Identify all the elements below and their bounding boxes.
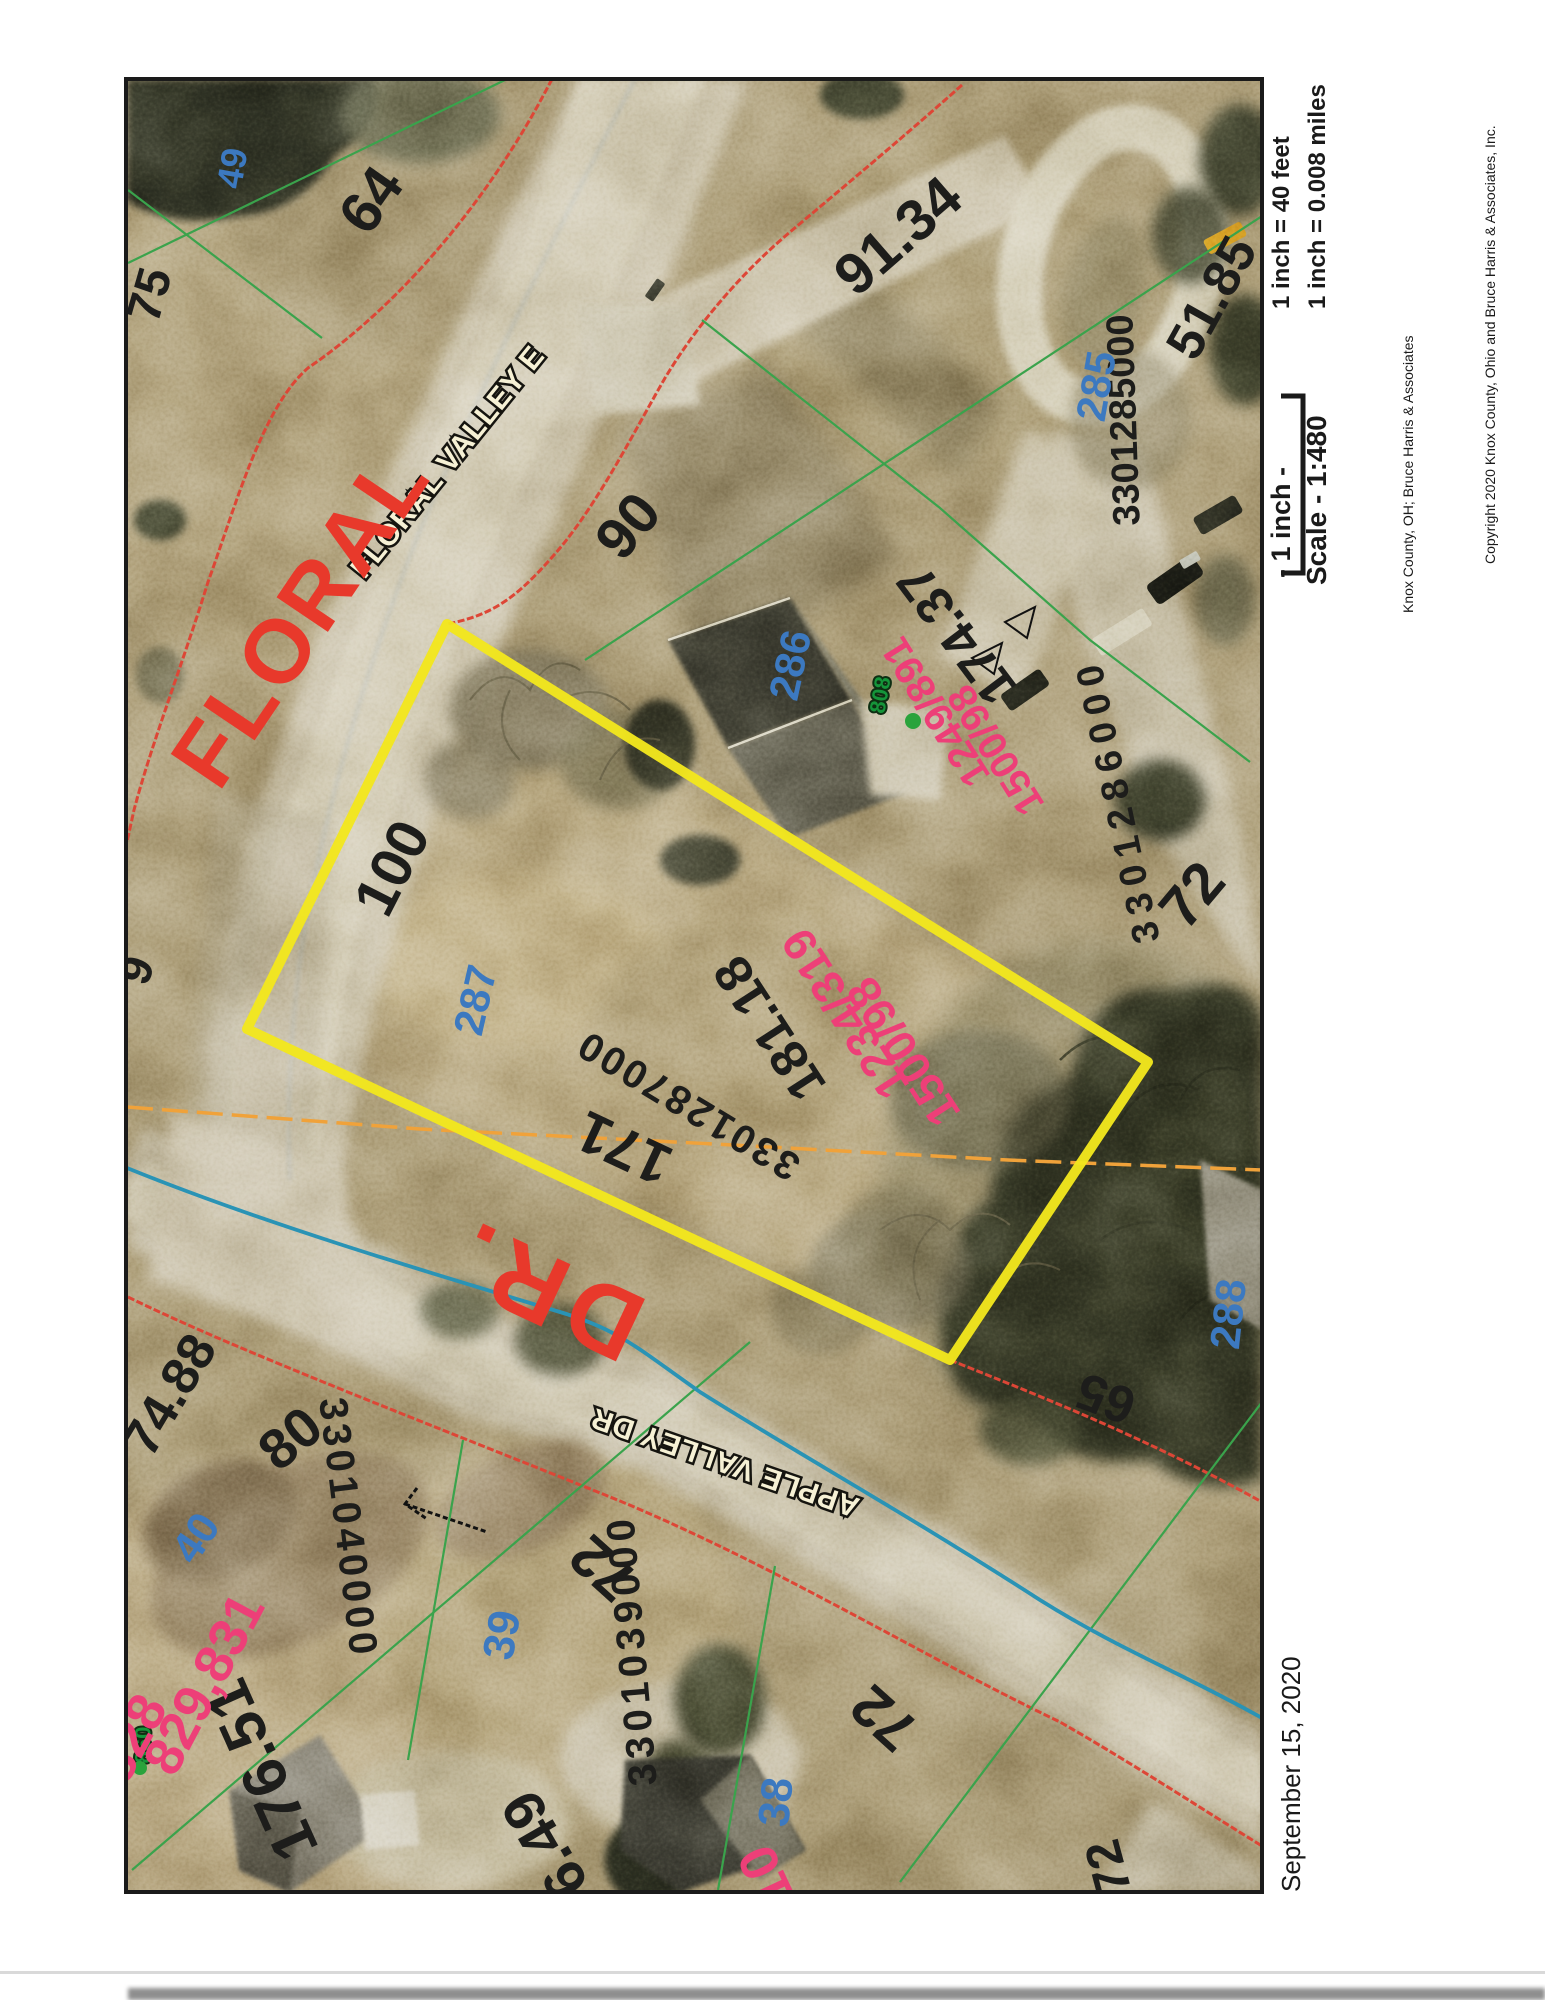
svg-text:1 inch = 0.008 miles: 1 inch = 0.008 miles [1304, 84, 1331, 309]
svg-text:39: 39 [474, 1607, 531, 1664]
svg-text:Scale - 1:480: Scale - 1:480 [1301, 415, 1332, 585]
svg-text:1 inch = 40 feet: 1 inch = 40 feet [1268, 136, 1295, 309]
svg-text:September 15, 2020: September 15, 2020 [1276, 1656, 1306, 1892]
svg-text:- 1 inch -: - 1 inch - [1266, 467, 1296, 578]
svg-text:38: 38 [749, 1775, 803, 1829]
svg-text:288: 288 [1201, 1277, 1255, 1352]
svg-text:Knox County, OH; Bruce Harris: Knox County, OH; Bruce Harris & Associat… [1400, 335, 1416, 613]
svg-text:Copyright 2020 Knox County, Oh: Copyright 2020 Knox County, Ohio and Bru… [1482, 125, 1498, 564]
svg-text:49: 49 [208, 145, 255, 192]
